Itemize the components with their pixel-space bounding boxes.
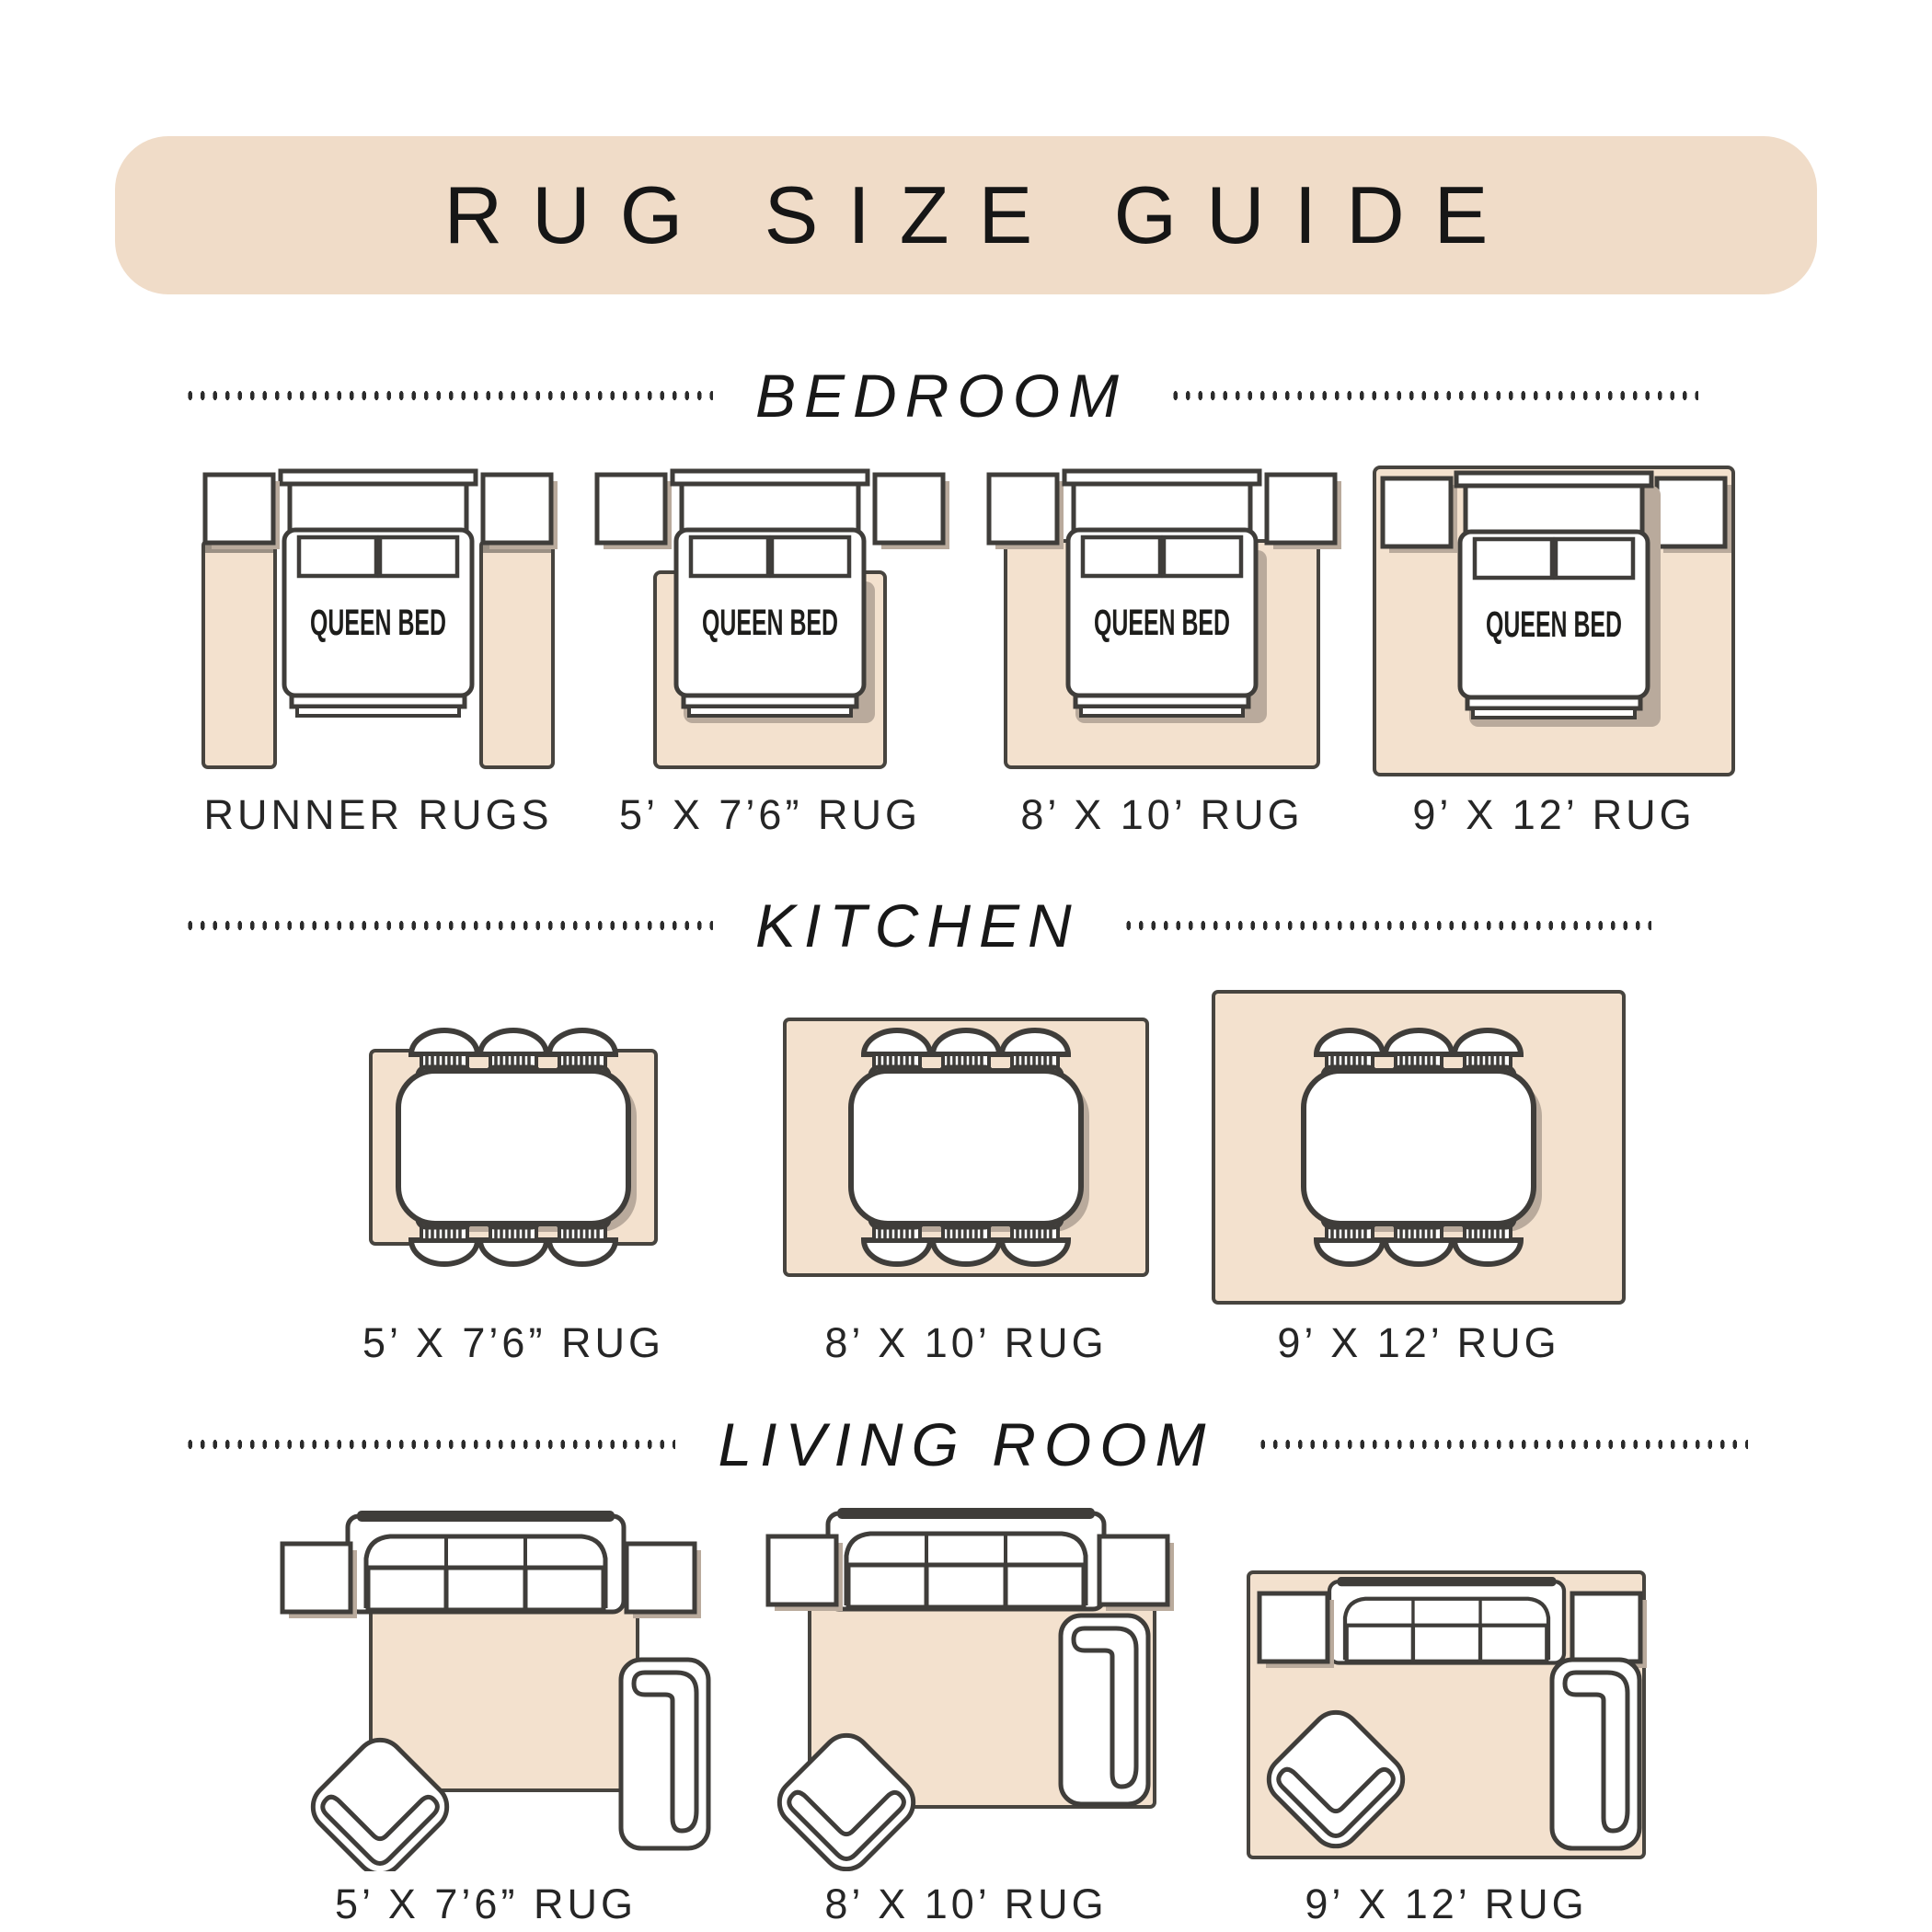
bedroom-8x10-diagram xyxy=(969,462,1355,782)
nightstand-left xyxy=(597,475,672,549)
side-table-right xyxy=(1572,1593,1647,1668)
nightstand-left xyxy=(989,475,1064,549)
side-table-right xyxy=(627,1544,701,1618)
living-8x10-diagram xyxy=(741,1503,1191,1871)
sofa xyxy=(348,1511,624,1612)
living-8x10-figure: 8’ X 10’ RUG xyxy=(741,1503,1191,1928)
bedroom-5x76-figure: 5’ X 7’6” RUG xyxy=(577,462,963,839)
living-9x12-diagram xyxy=(1221,1503,1672,1871)
rug-size-label: RUNNER RUGS xyxy=(203,791,552,839)
dotted-divider-right xyxy=(1257,1435,1748,1454)
dotted-divider-left xyxy=(184,916,713,935)
living-room-heading-row: LIVING ROOM xyxy=(0,1409,1932,1479)
nightstand-right xyxy=(483,475,558,549)
queen-bed-illustration xyxy=(673,471,868,716)
kitchen-8x10-figure: 8’ X 10’ RUG xyxy=(750,986,1182,1367)
dotted-divider-right xyxy=(1169,386,1698,405)
chaise-lounge xyxy=(1552,1660,1639,1848)
kitchen-5x76-diagram xyxy=(297,986,730,1310)
living-5x76-figure: 5’ X 7’6” RUG xyxy=(260,1503,711,1928)
section-title-bedroom: BEDROOM xyxy=(755,361,1127,431)
queen-bed-illustration xyxy=(1456,473,1651,718)
queen-bed-illustration xyxy=(281,471,476,716)
section-title-living-room: LIVING ROOM xyxy=(718,1409,1213,1479)
rug-size-label: 9’ X 12’ RUG xyxy=(1412,791,1695,839)
rug-size-label: 8’ X 10’ RUG xyxy=(824,1880,1107,1928)
nightstand-right xyxy=(875,475,949,549)
rug-size-label: 5’ X 7’6” RUG xyxy=(362,1319,664,1367)
living-9x12-figure: 9’ X 12’ RUG xyxy=(1221,1503,1672,1928)
kitchen-diagrams-row: 5’ X 7’6” RUG 8’ X 10’ RUG xyxy=(0,986,1932,1367)
living-5x76-diagram xyxy=(260,1503,711,1871)
rug-size-label: 9’ X 12’ RUG xyxy=(1277,1319,1559,1367)
nightstand-left xyxy=(1383,478,1457,553)
living-room-diagrams-row: 5’ X 7’6” RUG 8’ X 10’ RUG xyxy=(0,1503,1932,1928)
chaise-lounge xyxy=(1061,1616,1148,1804)
rug-size-label: 9’ X 12’ RUG xyxy=(1305,1880,1587,1928)
dining-table xyxy=(851,1071,1081,1224)
bedroom-5x76-diagram xyxy=(577,462,963,782)
chaise-lounge xyxy=(621,1660,708,1848)
bedroom-runner-rugs-diagram xyxy=(185,462,571,782)
sofa xyxy=(828,1508,1104,1609)
title-band: RUG SIZE GUIDE xyxy=(115,136,1817,294)
bedroom-runner-rugs-figure: RUNNER RUGS xyxy=(185,462,571,839)
section-title-kitchen: KITCHEN xyxy=(755,891,1080,960)
rug-size-label: 8’ X 10’ RUG xyxy=(824,1319,1107,1367)
dotted-divider-left xyxy=(184,1435,675,1454)
queen-bed-illustration xyxy=(1064,471,1259,716)
bedroom-8x10-figure: 8’ X 10’ RUG xyxy=(969,462,1355,839)
page-title: RUG SIZE GUIDE xyxy=(415,168,1518,262)
runner-rug-right xyxy=(481,541,553,767)
dining-table xyxy=(1304,1071,1534,1224)
bedroom-heading-row: BEDROOM xyxy=(0,361,1932,431)
kitchen-8x10-diagram xyxy=(750,986,1182,1310)
nightstand-left xyxy=(205,475,280,549)
dining-table xyxy=(398,1071,628,1224)
sofa xyxy=(1329,1577,1564,1663)
kitchen-heading-row: KITCHEN xyxy=(0,891,1932,960)
kitchen-5x76-figure: 5’ X 7’6” RUG xyxy=(297,986,730,1367)
side-table-right xyxy=(1099,1536,1174,1611)
kitchen-9x12-figure: 9’ X 12’ RUG xyxy=(1202,986,1635,1367)
dotted-divider-left xyxy=(184,386,713,405)
nightstand-right xyxy=(1267,475,1341,549)
bedroom-diagrams-row: RUNNER RUGS 5’ X 7’6” RUG xyxy=(0,462,1932,839)
bedroom-9x12-diagram xyxy=(1361,462,1747,782)
side-table-left xyxy=(768,1536,843,1611)
rug-size-label: 5’ X 7’6” RUG xyxy=(335,1880,637,1928)
side-table-left xyxy=(282,1544,357,1618)
nightstand-right xyxy=(1657,478,1731,553)
rug-size-guide-page: RUG SIZE GUIDE BEDROOM RUNNER RUGS xyxy=(0,0,1932,1932)
rug-size-label: 8’ X 10’ RUG xyxy=(1020,791,1303,839)
dotted-divider-right xyxy=(1122,916,1651,935)
runner-rug-left xyxy=(203,541,275,767)
rug-size-label: 5’ X 7’6” RUG xyxy=(619,791,921,839)
kitchen-9x12-diagram xyxy=(1202,986,1635,1310)
bedroom-9x12-figure: 9’ X 12’ RUG xyxy=(1361,462,1747,839)
section-bedroom: BEDROOM RUNNER RUGS xyxy=(0,361,1932,839)
section-kitchen: KITCHEN 5’ X 7’6” RUG xyxy=(0,891,1932,1367)
side-table-left xyxy=(1259,1593,1334,1668)
section-living-room: LIVING ROOM 5’ X 7’6” RUG xyxy=(0,1409,1932,1928)
